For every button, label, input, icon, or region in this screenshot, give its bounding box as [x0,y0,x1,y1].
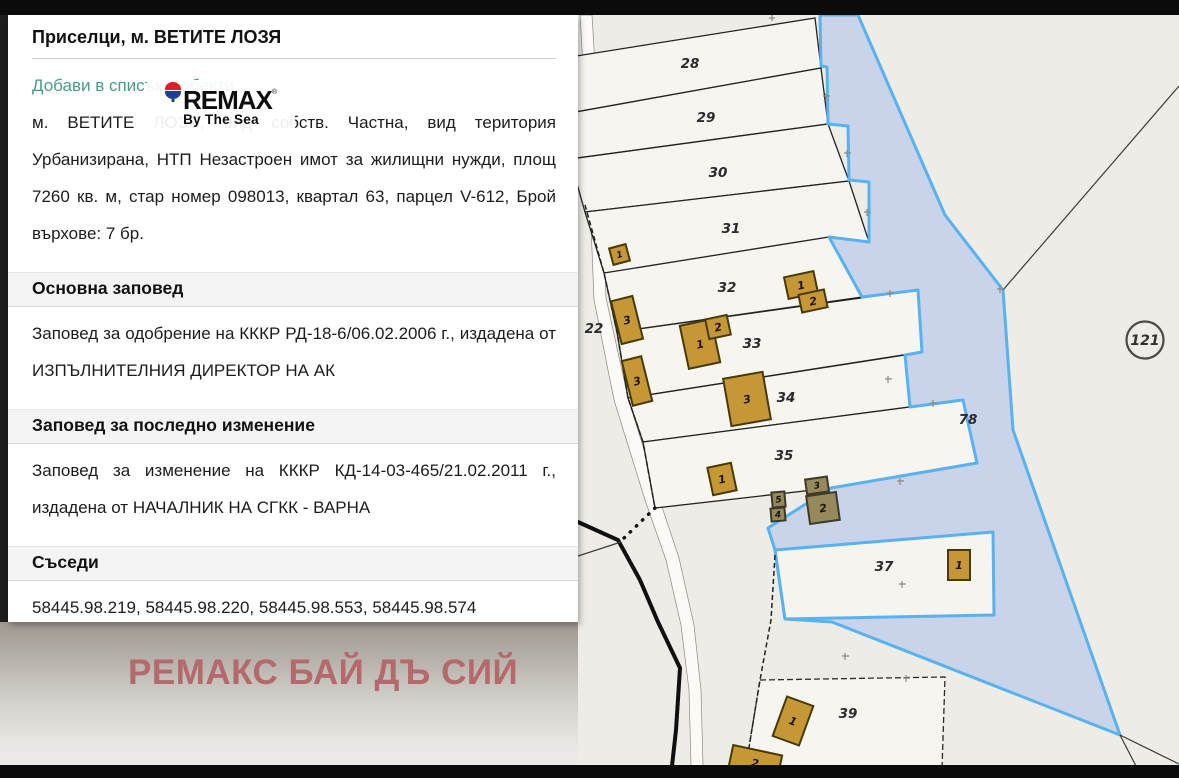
panel-title: Приселци, м. ВЕТИТЕ ЛОЗЯ [32,21,556,59]
left-edge-strip [0,15,8,622]
parcel-label-28: 28 [681,56,700,72]
watermark-text: РЕМАКС БАЙ ДЪ СИЙ [128,653,548,693]
building-label: 5 [775,495,782,506]
top-black-bar [0,0,1179,15]
building-label: 4 [774,510,782,521]
remax-balloon-icon [165,82,181,104]
parcel-label-39: 39 [839,706,858,722]
remax-tagline: By The Sea [183,112,259,127]
parcel-label-78: 78 [959,412,978,428]
parcel-label-33: 33 [743,336,762,352]
last-change-text: Заповед за изменение на КККР КД-14-03-46… [32,452,556,526]
parcel-label-32: 32 [718,280,737,296]
parcel-label-35: 35 [775,448,794,464]
parcel-label-30: 30 [709,165,728,181]
main-order-text: Заповед за одобрение на КККР РД-18-6/06.… [32,315,556,389]
section-heading-last-change: Заповед за последно изменение [8,409,578,444]
building-footprint: 2 [806,492,840,524]
cadastral-map[interactable]: 1312123315432112282930313233343537392278… [578,15,1179,765]
bottom-black-bar [0,765,1179,778]
parcel-label-37: 37 [875,559,894,575]
remax-registered-mark: ® [272,89,277,96]
parcel-label-22: 22 [585,321,604,337]
building-footprint: 5 [771,491,785,507]
building-footprint: 1 [948,550,970,580]
section-heading-neighbors: Съседи [8,546,578,581]
building-footprint: 3 [723,372,771,426]
building-label: 1 [955,559,963,572]
remax-brand-text: REMAX [183,88,272,112]
section-heading-main-order: Основна заповед [8,272,578,307]
building-footprint: 2 [705,315,731,339]
building-footprint: 1 [609,244,630,265]
circled-parcel-label: 121 [1130,333,1159,349]
building-footprint: 3 [805,477,829,495]
building-footprint: 1 [707,463,736,495]
parcel-label-34: 34 [777,390,796,406]
parcel-label-31: 31 [722,221,741,237]
building-label: 2 [750,756,761,765]
parcel-label-29: 29 [697,110,716,126]
neighbors-text: 58445.98.219, 58445.98.220, 58445.98.553… [32,589,556,626]
remax-watermark-logo: REMAX ® By The Sea [147,80,295,134]
gradient-backdrop [0,622,578,765]
building-footprint: 4 [770,507,785,521]
